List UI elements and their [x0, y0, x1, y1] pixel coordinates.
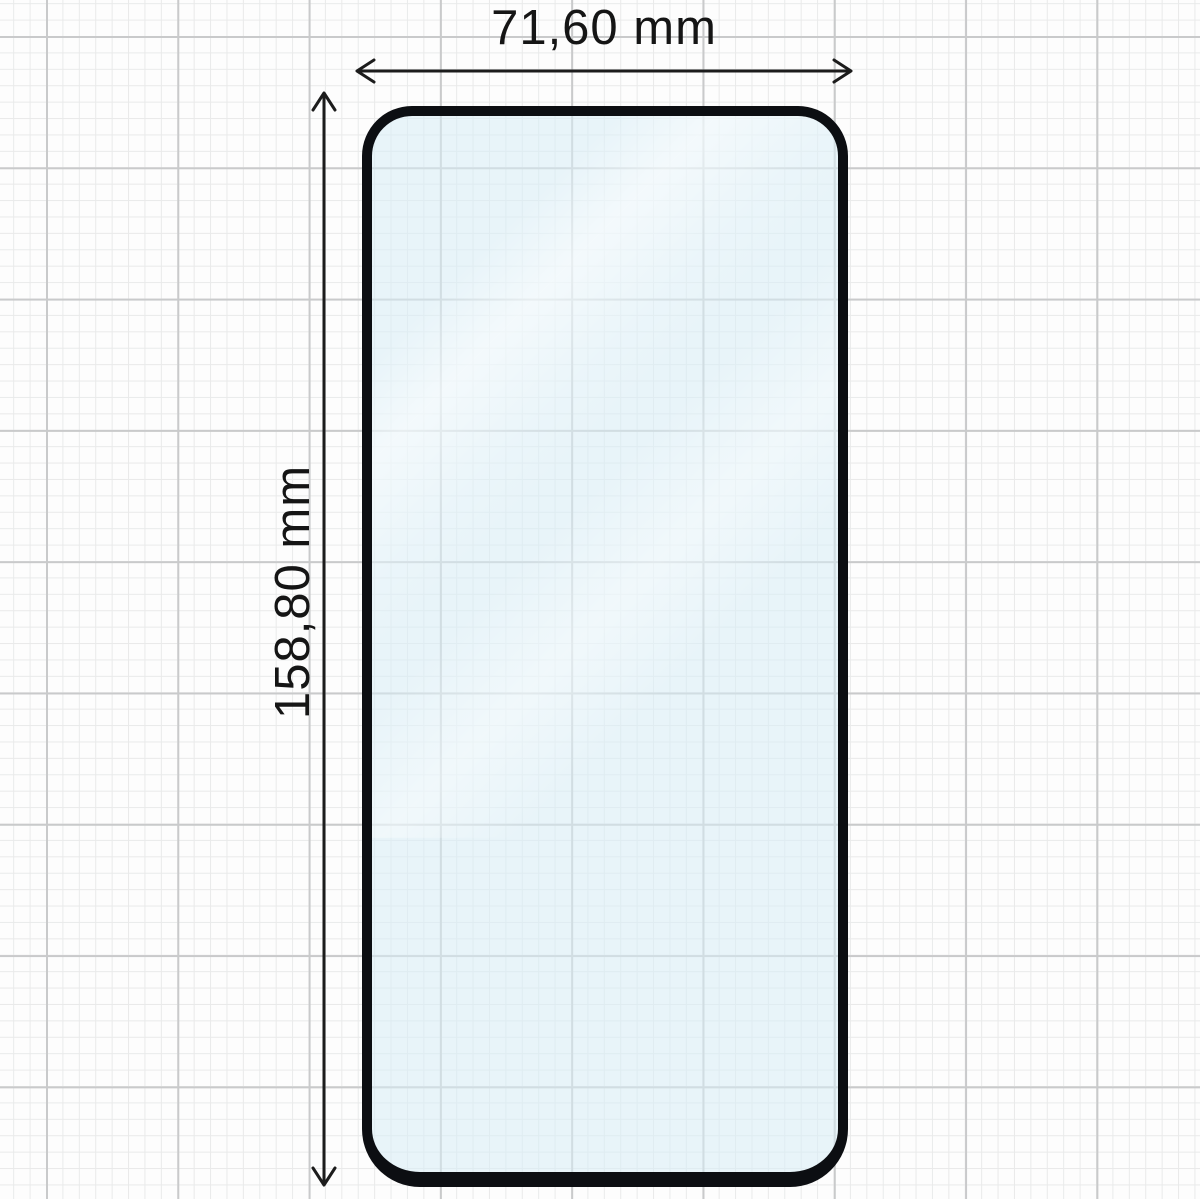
screen-protector-outline: [362, 106, 848, 1187]
glass-reflection-highlight: [372, 116, 838, 1172]
height-dimension-label: 158,80 mm: [267, 465, 321, 719]
graph-paper-background: 71,60 mm 158,80 mm: [0, 0, 1200, 1199]
width-dimension-arrow: [357, 60, 851, 82]
width-dimension-label: 71,60 mm: [491, 2, 717, 56]
